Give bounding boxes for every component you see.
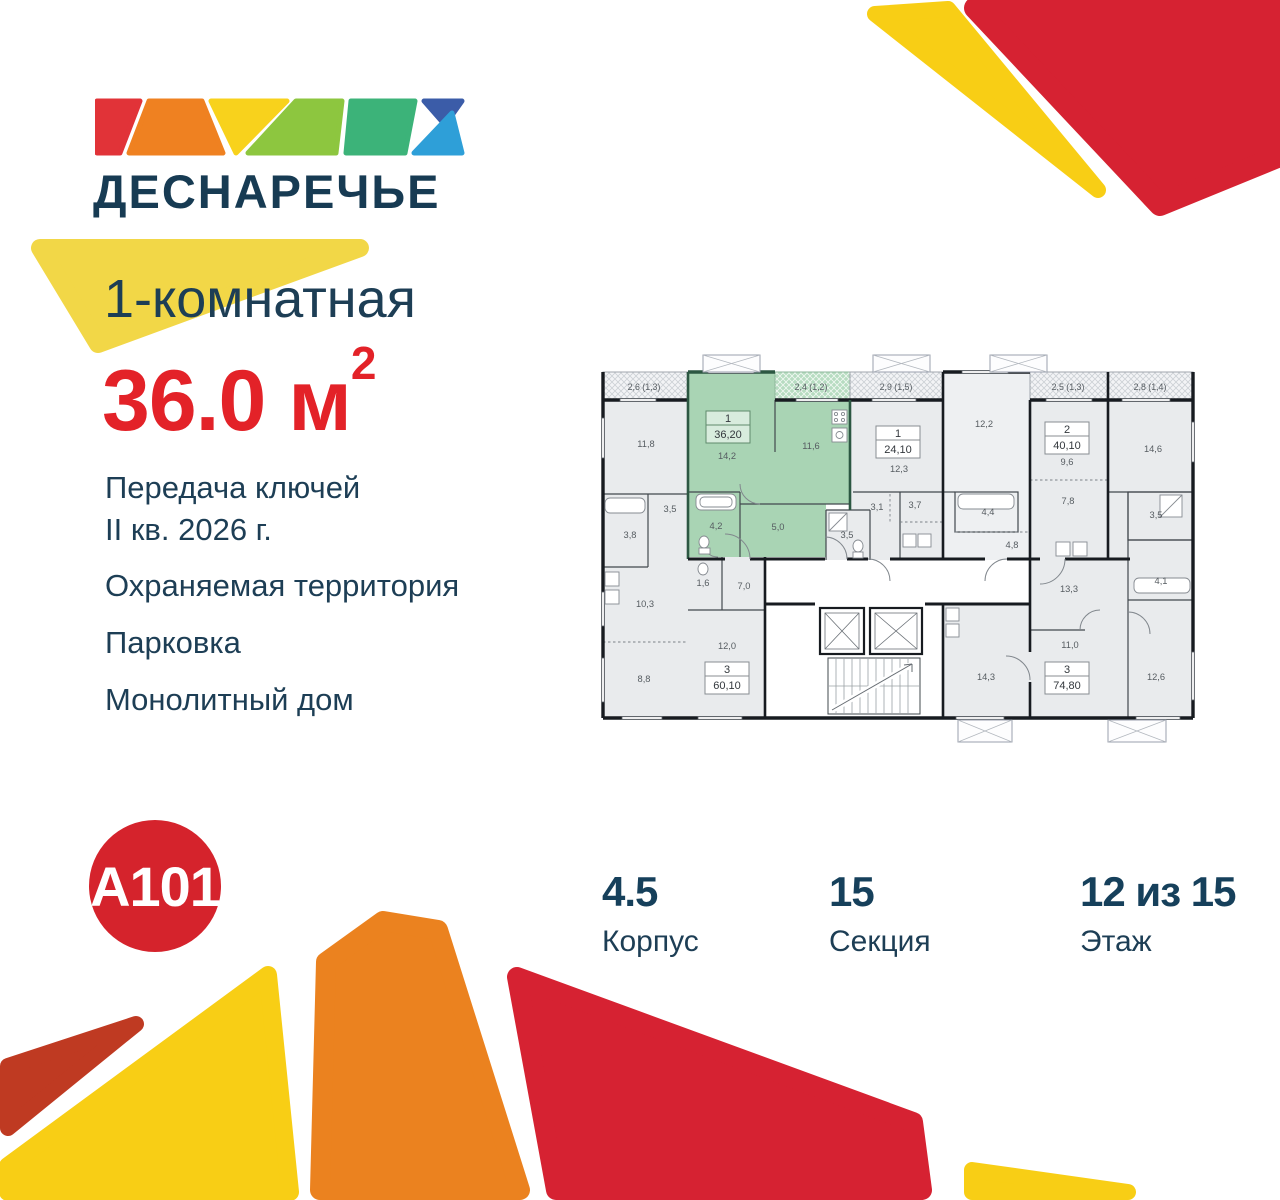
svg-text:3,5: 3,5	[1150, 510, 1163, 520]
svg-text:14,2: 14,2	[718, 451, 736, 461]
feature-security: Охраняемая территория	[105, 568, 459, 604]
svg-text:3,8: 3,8	[624, 530, 637, 540]
svg-text:9,6: 9,6	[1061, 457, 1074, 467]
staircase	[828, 658, 920, 714]
page-title: 1-комнатная	[104, 268, 416, 330]
svg-text:40,10: 40,10	[1053, 440, 1081, 452]
svg-text:4,2: 4,2	[710, 521, 723, 531]
svg-text:3: 3	[724, 664, 730, 676]
svg-text:1: 1	[725, 413, 731, 425]
svg-text:11,6: 11,6	[802, 441, 819, 451]
svg-text:10,3: 10,3	[636, 599, 654, 609]
svg-text:12,3: 12,3	[890, 464, 908, 474]
feature-construction: Монолитный дом	[105, 682, 354, 718]
svg-text:24,10: 24,10	[884, 444, 912, 456]
svg-text:3: 3	[1064, 664, 1070, 676]
svg-text:4,8: 4,8	[1006, 540, 1019, 550]
svg-text:3,1: 3,1	[871, 502, 884, 512]
feature-handover-line2: II кв. 2026 г.	[105, 512, 272, 548]
svg-text:74,80: 74,80	[1053, 680, 1081, 692]
svg-text:7,8: 7,8	[1062, 496, 1075, 506]
stat-building: 4.5 Корпус	[602, 868, 699, 959]
deco-bottom-red	[517, 977, 922, 1190]
svg-text:2,4 (1,2): 2,4 (1,2)	[795, 382, 828, 392]
a101-logo: A101	[89, 820, 221, 952]
deco-bottom-right-yellow	[972, 1170, 1128, 1192]
stat-building-label: Корпус	[602, 925, 699, 959]
deco-bottom-orange	[320, 921, 520, 1190]
stat-section-label: Секция	[829, 925, 931, 959]
desnarechye-logo-icon	[95, 96, 467, 158]
svg-text:11,0: 11,0	[1061, 640, 1078, 650]
svg-text:60,10: 60,10	[713, 680, 741, 692]
svg-text:11,8: 11,8	[637, 439, 654, 449]
svg-text:14,3: 14,3	[977, 672, 995, 682]
svg-text:1: 1	[895, 428, 901, 440]
svg-text:12,0: 12,0	[718, 641, 736, 651]
svg-text:2,5 (1,3): 2,5 (1,3)	[1052, 382, 1085, 392]
svg-text:8,8: 8,8	[638, 674, 651, 684]
svg-text:4,1: 4,1	[1155, 576, 1168, 586]
area-value: 36.0 м2	[102, 352, 376, 451]
svg-text:2,6 (1,3): 2,6 (1,3)	[628, 382, 661, 392]
svg-text:2: 2	[1064, 424, 1070, 436]
stat-floor: 12 из 15 Этаж	[1080, 868, 1235, 959]
svg-text:1,6: 1,6	[697, 578, 710, 588]
logo-wordmark: ДЕСНАРЕЧЬЕ	[93, 164, 441, 219]
svg-text:36,20: 36,20	[714, 429, 742, 441]
svg-text:12,2: 12,2	[975, 419, 993, 429]
svg-text:4,4: 4,4	[982, 507, 995, 517]
svg-text:3,7: 3,7	[909, 500, 922, 510]
stat-floor-label: Этаж	[1080, 925, 1235, 959]
a101-logo-text: A101	[90, 854, 220, 919]
svg-text:3,5: 3,5	[841, 530, 854, 540]
svg-text:12,6: 12,6	[1147, 672, 1165, 682]
area-superscript: 2	[351, 337, 376, 389]
stat-section: 15 Секция	[829, 868, 931, 959]
listing-card: ДЕСНАРЕЧЬЕ 1-комнатная 36.0 м2 Передача …	[0, 0, 1280, 1200]
svg-text:2,9 (1,5): 2,9 (1,5)	[880, 382, 913, 392]
svg-text:7,0: 7,0	[738, 581, 751, 591]
svg-text:2,8 (1,4): 2,8 (1,4)	[1134, 382, 1167, 392]
feature-parking: Парковка	[105, 625, 241, 661]
deco-top-right-yellow-sliver	[875, 9, 1098, 190]
feature-handover-line1: Передача ключей	[105, 470, 360, 506]
stat-building-value: 4.5	[602, 868, 699, 916]
svg-text:3,5: 3,5	[664, 504, 677, 514]
floor-plan: 2,6 (1,3)2,4 (1,2)2,9 (1,5)2,5 (1,3)2,8 …	[600, 352, 1197, 748]
deco-bottom-yellow-triangle	[8, 975, 290, 1192]
svg-text:14,6: 14,6	[1144, 444, 1162, 454]
stat-floor-value: 12 из 15	[1080, 868, 1235, 916]
deco-top-right-red	[975, 8, 1275, 205]
svg-text:13,3: 13,3	[1060, 584, 1078, 594]
elevator-shafts	[820, 608, 922, 654]
stat-section-value: 15	[829, 868, 931, 916]
deco-bottom-dark-red-sliver	[8, 1024, 136, 1128]
svg-text:5,0: 5,0	[772, 522, 785, 532]
